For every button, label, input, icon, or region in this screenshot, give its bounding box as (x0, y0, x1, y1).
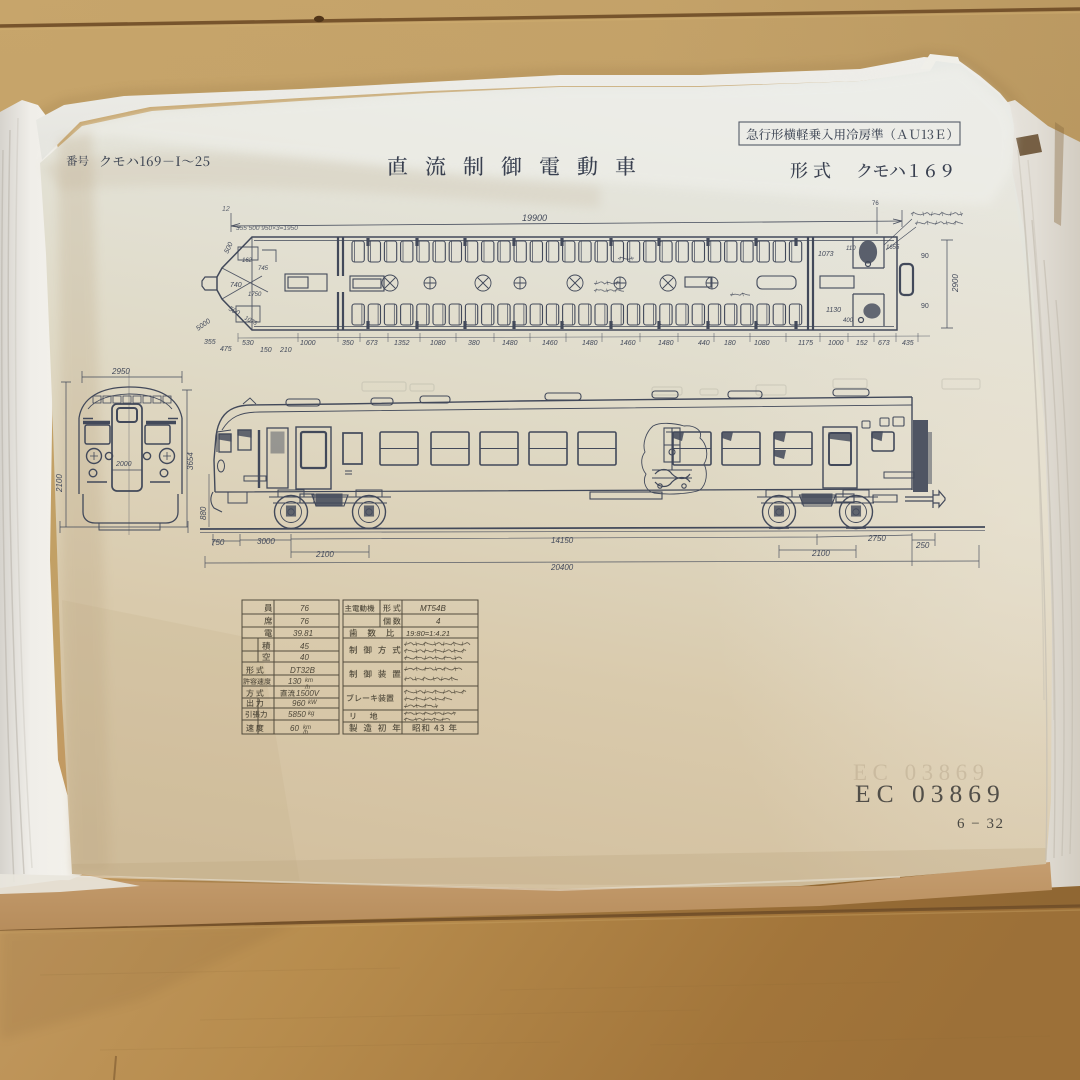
svg-text:162: 162 (242, 258, 253, 264)
svg-text:5850: 5850 (288, 710, 306, 719)
svg-text:2900: 2900 (951, 274, 960, 293)
svg-text:3000: 3000 (257, 537, 275, 546)
svg-text:19900: 19900 (522, 213, 547, 223)
svg-text:1460: 1460 (620, 340, 636, 347)
svg-text:90: 90 (921, 253, 929, 260)
svg-text:380: 380 (468, 340, 480, 347)
svg-text:2100: 2100 (55, 474, 64, 493)
svg-text:130: 130 (288, 677, 302, 686)
svg-text:kg: kg (308, 711, 315, 717)
svg-text:1080: 1080 (430, 340, 446, 347)
svg-text:1073: 1073 (818, 251, 834, 258)
svg-text:150: 150 (260, 347, 272, 354)
svg-text:1130: 1130 (826, 307, 841, 314)
svg-text:60: 60 (290, 724, 299, 733)
svg-text:1480: 1480 (582, 340, 598, 347)
svg-text:39.81: 39.81 (293, 629, 313, 638)
svg-text:14150: 14150 (551, 536, 574, 545)
svg-text:EC 03869: EC 03869 (855, 779, 1006, 808)
svg-text:530: 530 (242, 340, 254, 347)
svg-text:350: 350 (342, 340, 354, 347)
svg-text:MT54B: MT54B (420, 604, 446, 613)
svg-text:19:80=1:4.21: 19:80=1:4.21 (406, 629, 450, 638)
svg-text:435: 435 (902, 340, 914, 347)
svg-text:90: 90 (921, 303, 929, 310)
svg-text:76: 76 (300, 604, 309, 613)
svg-text:152: 152 (856, 340, 868, 347)
svg-text:45: 45 (300, 642, 309, 651)
svg-text:1175: 1175 (798, 340, 813, 347)
svg-text:180: 180 (724, 340, 736, 347)
svg-text:20400: 20400 (550, 563, 574, 572)
svg-text:673: 673 (878, 340, 890, 347)
svg-text:4: 4 (436, 617, 441, 626)
svg-text:673: 673 (366, 340, 378, 347)
svg-text:2750: 2750 (867, 534, 886, 543)
svg-text:745: 745 (258, 266, 269, 272)
svg-text:2000: 2000 (115, 461, 132, 468)
svg-text:1655: 1655 (886, 245, 900, 251)
svg-text:2100: 2100 (811, 549, 830, 558)
svg-text:1080: 1080 (754, 340, 770, 347)
svg-text:DT32B: DT32B (290, 666, 316, 675)
svg-text:2100: 2100 (315, 550, 334, 559)
svg-text:km: km (305, 678, 313, 684)
svg-text:2950: 2950 (111, 367, 130, 376)
svg-text:/h: /h (302, 730, 309, 736)
svg-text:475: 475 (220, 346, 232, 353)
svg-text:kW: kW (308, 700, 318, 706)
svg-text:/h: /h (304, 685, 311, 691)
svg-text:1000: 1000 (828, 340, 844, 347)
svg-text:740: 740 (230, 282, 242, 289)
svg-text:355 500 950×3=1950: 355 500 950×3=1950 (236, 225, 298, 232)
svg-text:1750: 1750 (248, 292, 262, 298)
svg-text:1480: 1480 (502, 340, 518, 347)
svg-text:210: 210 (279, 347, 292, 354)
svg-text:1480: 1480 (658, 340, 674, 347)
svg-text:110: 110 (846, 246, 856, 252)
svg-text:1460: 1460 (542, 340, 558, 347)
svg-text:750: 750 (211, 538, 225, 547)
svg-text:40: 40 (300, 653, 309, 662)
svg-text:250: 250 (915, 541, 930, 550)
svg-text:400: 400 (843, 318, 854, 324)
svg-text:1352: 1352 (394, 340, 410, 347)
svg-text:76: 76 (872, 201, 879, 207)
svg-text:880: 880 (199, 506, 208, 520)
svg-text:1000: 1000 (300, 340, 316, 347)
svg-text:76: 76 (300, 617, 309, 626)
svg-text:12: 12 (222, 206, 230, 213)
svg-text:6 − 32: 6 − 32 (957, 816, 1004, 832)
svg-text:3654: 3654 (186, 452, 195, 470)
svg-text:355: 355 (204, 339, 216, 346)
svg-text:440: 440 (698, 340, 710, 347)
svg-text:960: 960 (292, 699, 306, 708)
